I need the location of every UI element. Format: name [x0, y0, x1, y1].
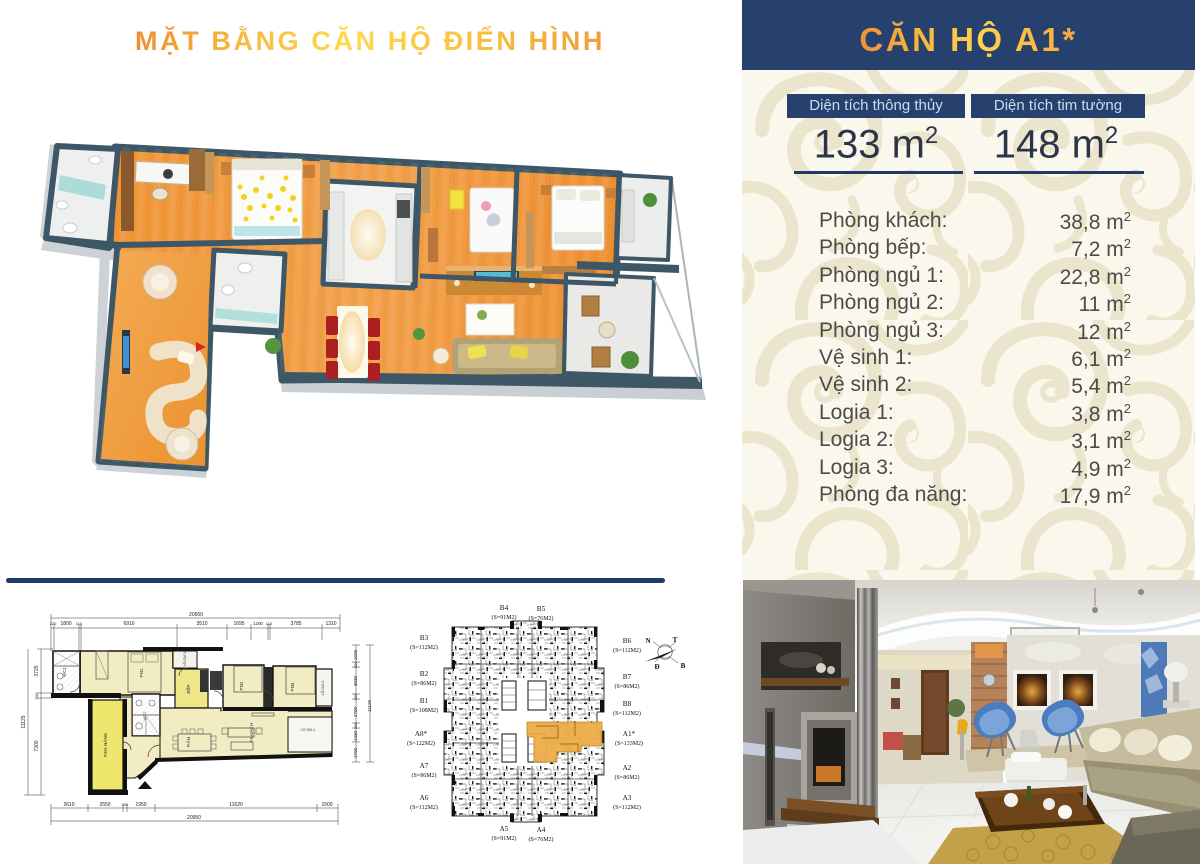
- svg-text:LÔ GIA 2: LÔ GIA 2: [320, 681, 325, 696]
- svg-text:B4: B4: [500, 604, 509, 612]
- svg-text:20650: 20650: [189, 612, 203, 618]
- svg-text:20950: 20950: [187, 815, 201, 821]
- svg-text:(S=86M2): (S=86M2): [614, 774, 639, 781]
- svg-text:6910: 6910: [123, 621, 134, 627]
- svg-text:1025: 1025: [353, 649, 358, 660]
- svg-text:(S=76M2): (S=76M2): [528, 836, 553, 843]
- svg-text:500: 500: [34, 692, 39, 699]
- svg-text:(S=86M2): (S=86M2): [411, 772, 436, 779]
- svg-text:1950: 1950: [135, 802, 146, 808]
- svg-text:A2: A2: [623, 764, 632, 772]
- svg-text:B: B: [681, 662, 686, 670]
- svg-text:1695: 1695: [233, 621, 244, 627]
- svg-text:BẾP: BẾP: [185, 684, 191, 693]
- svg-text:A7: A7: [420, 762, 429, 770]
- svg-text:3510: 3510: [196, 621, 207, 627]
- svg-text:1310: 1310: [325, 621, 336, 627]
- svg-text:2610: 2610: [63, 802, 74, 808]
- svg-text:A3: A3: [623, 794, 632, 802]
- svg-text:(S=112M2): (S=112M2): [410, 644, 438, 651]
- svg-text:3785: 3785: [290, 621, 301, 627]
- svg-text:B1: B1: [420, 697, 429, 705]
- svg-text:(S=112M2): (S=112M2): [613, 804, 641, 811]
- svg-text:PN3: PN3: [290, 682, 295, 691]
- svg-text:(S=133M2): (S=133M2): [615, 740, 643, 747]
- svg-text:300: 300: [353, 722, 358, 729]
- svg-text:B2: B2: [420, 670, 429, 678]
- svg-text:1800: 1800: [60, 621, 71, 627]
- svg-text:(S=76M2): (S=76M2): [528, 615, 553, 622]
- svg-text:11125: 11125: [367, 700, 372, 713]
- svg-text:PN2: PN2: [239, 681, 244, 690]
- svg-text:A1*: A1*: [623, 730, 636, 738]
- svg-text:Đ: Đ: [654, 663, 659, 671]
- svg-text:(S=86M2): (S=86M2): [411, 680, 436, 687]
- svg-text:A5: A5: [500, 825, 509, 833]
- svg-text:P.KHÁCH: P.KHÁCH: [248, 723, 254, 743]
- svg-text:3030: 3030: [353, 675, 358, 686]
- svg-text:LÔ GIA 3: LÔ GIA 3: [182, 652, 187, 667]
- svg-text:WC1: WC1: [62, 666, 67, 677]
- svg-text:T: T: [673, 636, 678, 644]
- svg-text:A4: A4: [537, 826, 546, 834]
- svg-text:11620: 11620: [229, 802, 243, 808]
- svg-text:A6: A6: [420, 794, 429, 802]
- svg-text:110: 110: [266, 621, 273, 626]
- svg-text:B5: B5: [537, 605, 546, 613]
- svg-text:7300: 7300: [34, 740, 40, 751]
- svg-text:(S=112M2): (S=112M2): [613, 647, 641, 654]
- svg-text:P.ĂN: P.ĂN: [185, 737, 191, 747]
- svg-text:N: N: [645, 637, 650, 645]
- svg-text:B3: B3: [420, 634, 429, 642]
- svg-text:2700: 2700: [353, 706, 358, 717]
- svg-text:B6: B6: [623, 637, 632, 645]
- svg-text:(S=112M2): (S=112M2): [410, 804, 438, 811]
- svg-text:300: 300: [353, 693, 358, 700]
- svg-text:1500: 1500: [321, 802, 332, 808]
- svg-text:(S=91M2): (S=91M2): [491, 614, 516, 621]
- svg-text:220: 220: [50, 621, 57, 626]
- svg-text:A8*: A8*: [415, 730, 428, 738]
- svg-text:(S=112M2): (S=112M2): [613, 710, 641, 717]
- svg-text:220: 220: [353, 661, 358, 668]
- svg-text:1700: 1700: [353, 747, 358, 758]
- svg-text:LÔ GIA 1: LÔ GIA 1: [301, 727, 316, 732]
- svg-text:WC2: WC2: [142, 711, 147, 721]
- svg-text:B8: B8: [623, 700, 632, 708]
- svg-text:PN1: PN1: [139, 668, 144, 677]
- svg-text:3725: 3725: [34, 665, 40, 676]
- svg-text:(S=108M2): (S=108M2): [410, 707, 438, 714]
- svg-text:(S=86M2): (S=86M2): [614, 683, 639, 690]
- svg-text:300: 300: [122, 802, 129, 807]
- svg-text:110: 110: [76, 621, 83, 626]
- svg-text:1430: 1430: [353, 730, 358, 741]
- svg-text:11125: 11125: [21, 715, 27, 728]
- svg-text:(S=91M2): (S=91M2): [491, 835, 516, 842]
- svg-text:P.ĐA NĂNG: P.ĐA NĂNG: [102, 732, 108, 757]
- svg-text:B7: B7: [623, 673, 632, 681]
- svg-text:2550: 2550: [99, 802, 110, 808]
- svg-text:(S=122M2): (S=122M2): [407, 740, 435, 747]
- svg-text:1200: 1200: [253, 621, 263, 626]
